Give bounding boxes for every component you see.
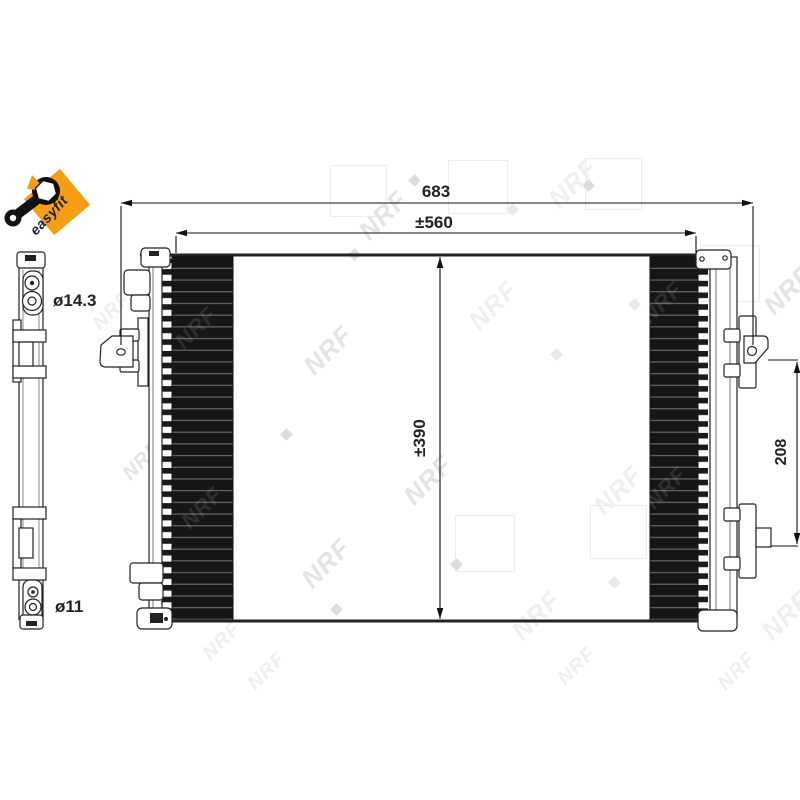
condenser-technical-drawing: easyfit: [0, 0, 800, 800]
right-core-tube-ends: [698, 259, 708, 619]
technical-drawing-page: NRF NRF NRF NRF NRF NRF NRF NRF NRF NRF …: [0, 0, 800, 800]
core-height-value: ±390: [410, 419, 429, 457]
left-tank-assembly: [100, 248, 172, 629]
side-lower-bracket: [13, 507, 46, 580]
easyfit-logo: easyfit: [5, 169, 91, 238]
right-bottom-cap: [698, 610, 737, 631]
top-fitting-diameter-label: ø14.3: [53, 291, 96, 310]
side-upper-bracket: [13, 320, 46, 382]
overall-width-value: 683: [422, 182, 450, 201]
left-top-cap: [141, 248, 170, 267]
right-lower-tab: [756, 528, 771, 547]
bottom-fitting-diameter-label: ø11: [55, 597, 83, 616]
bracket-spacing-value: 208: [773, 439, 790, 466]
left-mounting-bracket: [100, 318, 148, 386]
side-bottom-fitting: [20, 580, 43, 629]
core-width-value: ±560: [415, 213, 453, 232]
side-profile-view: [13, 252, 46, 629]
dimension-core-width: [176, 233, 696, 253]
